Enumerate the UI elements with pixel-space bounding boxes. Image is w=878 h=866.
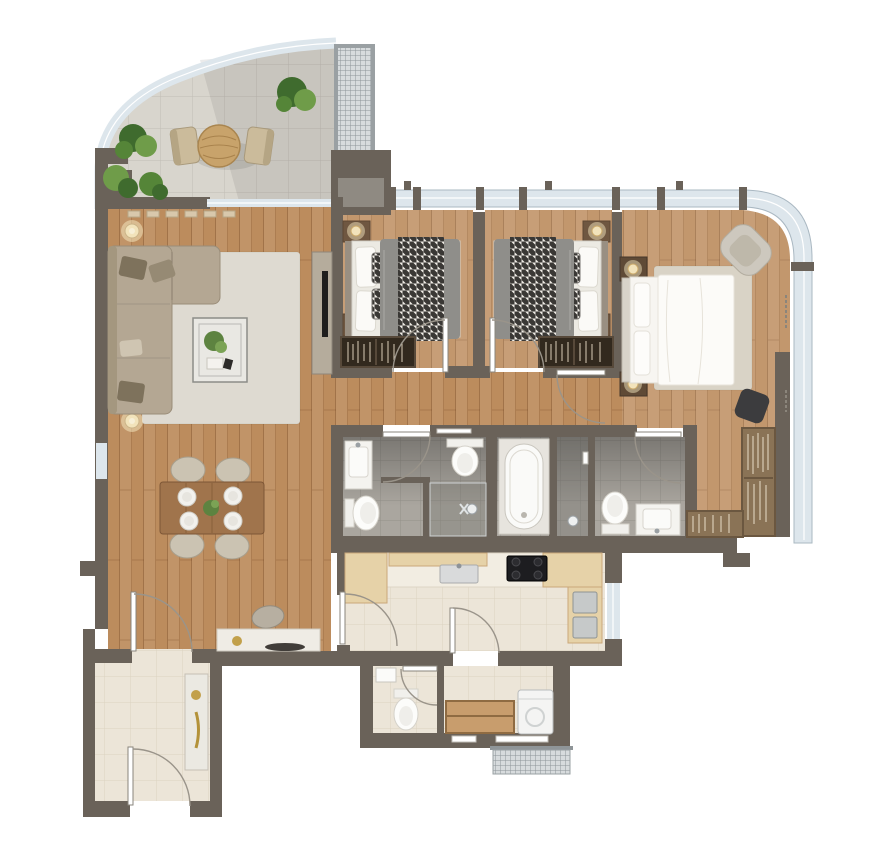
master-door-leaf <box>557 370 605 375</box>
utility-sill-b <box>496 736 548 742</box>
bath1-shower-stub-v <box>423 477 430 536</box>
king-bed <box>622 275 734 385</box>
closet-unit-bottom <box>687 511 743 537</box>
window-mullion <box>791 262 814 271</box>
dining-chair <box>216 458 250 484</box>
hall-right-wall <box>210 657 222 817</box>
cooktop <box>507 556 547 581</box>
duvet <box>658 275 734 385</box>
pillow <box>634 283 650 327</box>
partition-bed1-bed2 <box>473 212 485 366</box>
kitchen-door-bottom-leaf <box>450 608 455 653</box>
terrace-round-table <box>198 125 240 167</box>
living-top-wall <box>95 197 210 209</box>
corner-step <box>723 553 750 567</box>
shaft-wall-light <box>338 178 384 207</box>
double-bed <box>494 237 608 341</box>
kitchen-cabinet <box>543 553 602 587</box>
window-mullion <box>657 187 665 210</box>
dining-chair <box>170 532 204 558</box>
vent-grille <box>338 48 371 158</box>
wc-door-leaf <box>403 666 437 671</box>
toilet <box>394 689 418 730</box>
towel-rail <box>437 429 471 433</box>
wc-partition <box>437 666 444 733</box>
vent-grate <box>493 750 570 774</box>
window-mullion <box>519 187 527 210</box>
window-mullion <box>413 187 421 210</box>
utility-sill-a <box>452 736 476 742</box>
window-mullion <box>739 187 747 210</box>
desk-decor-gold <box>232 636 242 646</box>
wc-washbasin <box>376 668 396 682</box>
master-bath-door-leaf <box>635 432 681 437</box>
hall-bottom-wall-a <box>83 801 130 817</box>
hall-decor-gold <box>191 690 201 700</box>
window-mullion <box>612 187 620 210</box>
kitchen-left-wall-b <box>337 645 350 666</box>
built-in-appliance <box>573 592 597 613</box>
wall-tv <box>322 271 328 337</box>
wardrobe <box>539 337 613 367</box>
terrace-chair-right <box>244 126 275 165</box>
terrace-chair-left <box>170 126 201 165</box>
floor-plan-svg <box>0 0 878 866</box>
kitchen-cabinet <box>389 553 487 566</box>
kitchen-cabinet <box>345 553 387 603</box>
shelving-unit <box>446 701 514 733</box>
window-pilaster <box>676 181 683 190</box>
bath-left-wall <box>331 437 343 553</box>
washbasin-counter <box>345 441 372 489</box>
kitchen-sink <box>440 564 478 584</box>
hall-dining-door-leaf <box>131 592 136 651</box>
built-in-appliance <box>573 617 597 638</box>
pillow <box>577 247 598 288</box>
shower-head <box>568 516 578 526</box>
floor-lamp <box>121 220 143 242</box>
window-pilaster <box>404 181 411 190</box>
shower-head <box>467 504 477 514</box>
bidet <box>345 496 379 530</box>
bath2-shower-stub <box>588 437 595 536</box>
corridor-floor <box>331 372 622 425</box>
pillow <box>634 331 650 375</box>
closet-unit-vertical <box>742 428 775 536</box>
shower-mixer <box>583 452 588 464</box>
dining-hall-wall-a <box>95 649 132 663</box>
bath-bottom-wall <box>331 536 737 553</box>
floor-plan-canvas <box>0 0 878 866</box>
faucet <box>655 529 660 534</box>
shower-area <box>557 437 588 536</box>
walk-in-shower <box>430 483 486 536</box>
kitchen-door-left-leaf <box>340 592 345 644</box>
vent-grate-frame <box>490 746 573 750</box>
left-wall-lower <box>95 567 108 629</box>
kitchen-right-wall-a <box>605 553 622 583</box>
utility-right-wall <box>553 655 570 748</box>
coffee-table <box>193 318 247 382</box>
faucet <box>457 564 462 569</box>
tv-console <box>312 252 332 374</box>
bedroom2-door-leaf <box>490 318 495 372</box>
bedroom1-door-leaf <box>443 318 448 372</box>
desk-tray <box>265 643 305 651</box>
sofa-pillow <box>117 380 146 403</box>
bed1-bottom-wall-b <box>445 366 490 378</box>
tub-drain <box>521 512 527 518</box>
entry-door-leaf <box>128 747 133 805</box>
bath2-tub-stub <box>549 437 557 536</box>
closet-right-wall <box>775 352 790 537</box>
window-mullion <box>476 187 484 210</box>
wardrobe <box>341 337 415 367</box>
table-plant <box>215 341 227 353</box>
bathroom1-door-leaf <box>383 432 430 437</box>
bath-partition <box>486 425 497 553</box>
faucet <box>356 443 361 448</box>
centerpiece-plant <box>211 500 219 508</box>
dining-chair <box>215 533 249 559</box>
kitchen-right-wall-b <box>605 639 622 666</box>
window-pilaster <box>545 181 552 190</box>
left-wall <box>95 197 108 567</box>
washbasin-counter <box>636 504 680 535</box>
bathtub <box>499 439 549 534</box>
washing-machine <box>518 690 553 734</box>
table-book <box>207 358 223 369</box>
hall-left-wall <box>83 629 95 817</box>
bath-top-wall-a <box>331 425 383 437</box>
sofa-pillow <box>119 339 143 357</box>
pillow <box>577 291 598 332</box>
entrance-hall <box>185 674 208 770</box>
dining-chair <box>171 457 205 483</box>
dining-side-window <box>96 443 107 479</box>
toilet <box>602 492 629 534</box>
